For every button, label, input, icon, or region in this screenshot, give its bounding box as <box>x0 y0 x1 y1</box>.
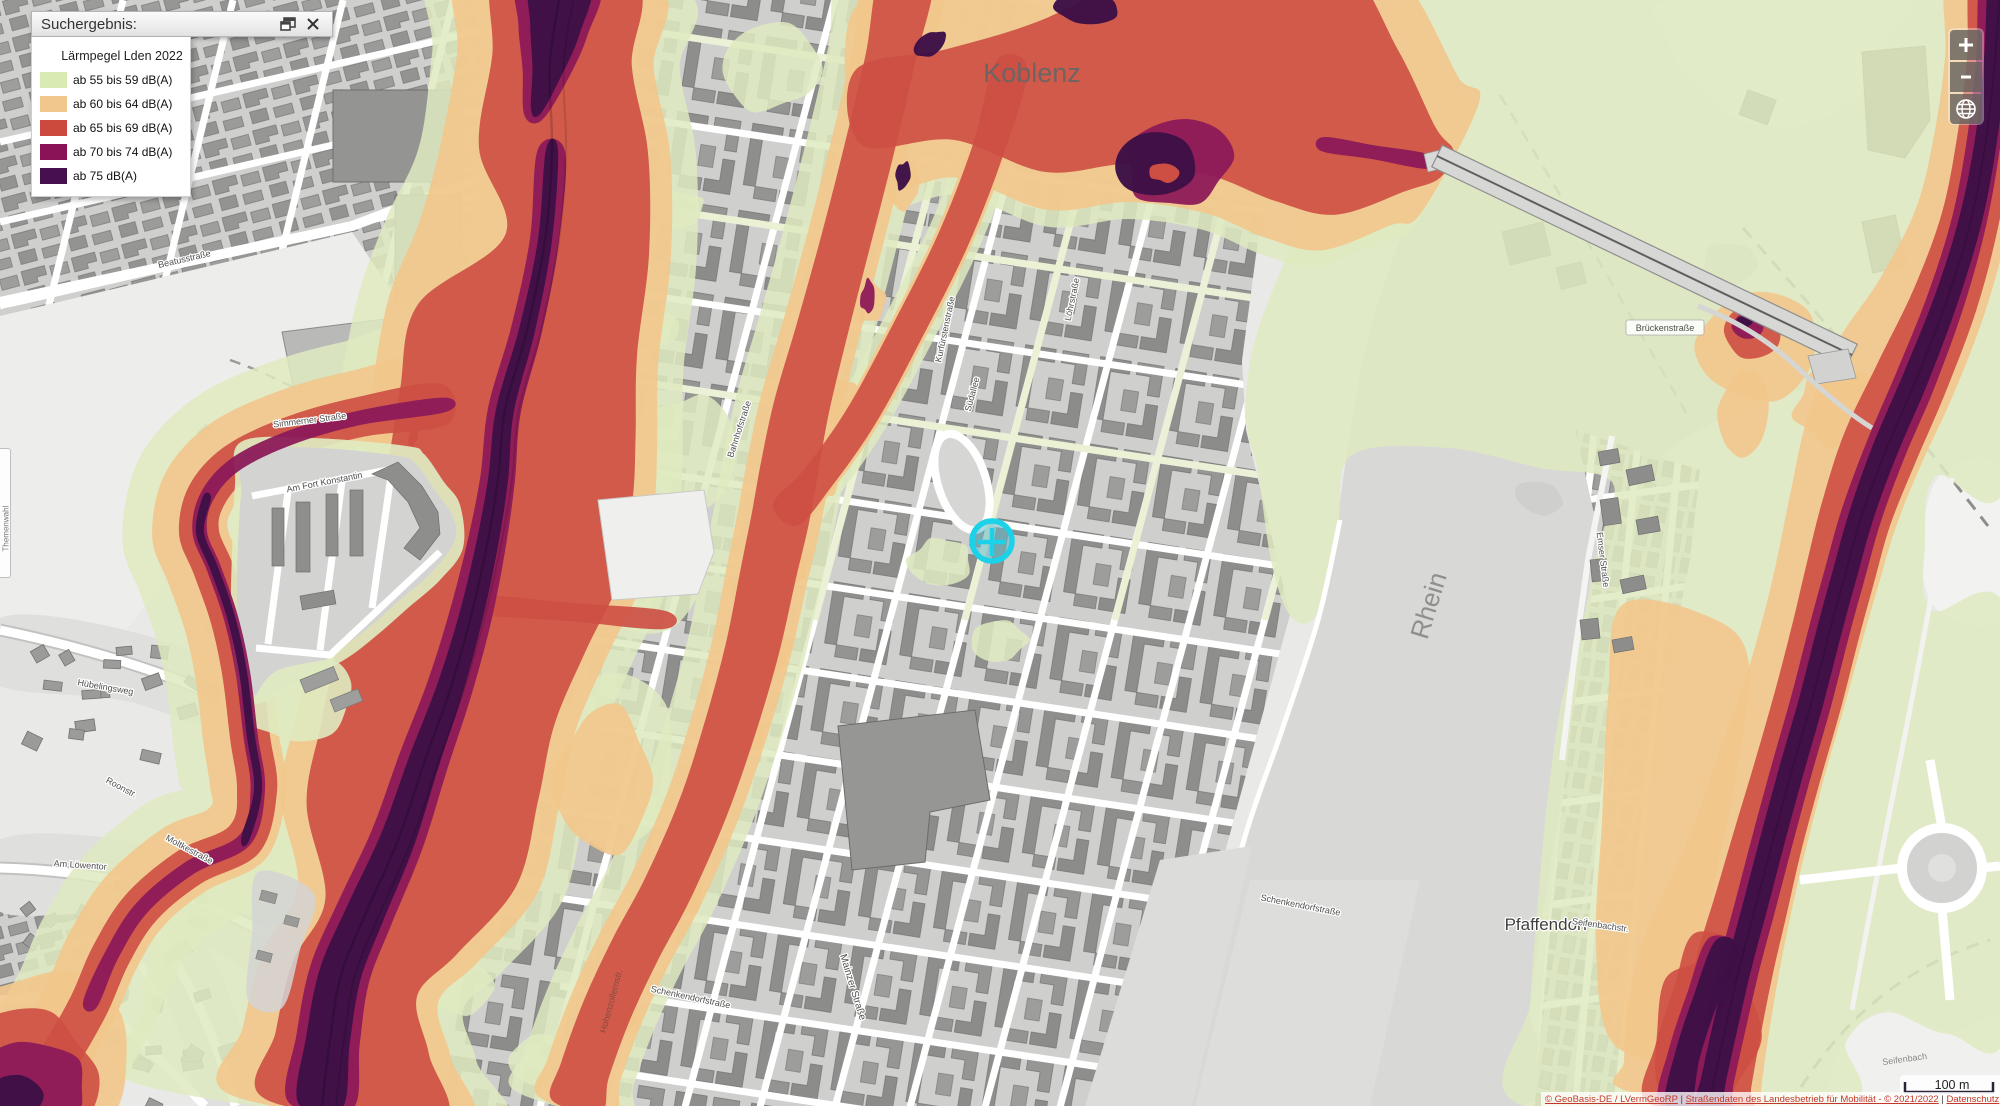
svg-text:100 m: 100 m <box>1935 1078 1970 1092</box>
svg-text:Brückenstraße: Brückenstraße <box>1636 323 1695 333</box>
svg-text:Koblenz: Koblenz <box>983 58 1081 88</box>
